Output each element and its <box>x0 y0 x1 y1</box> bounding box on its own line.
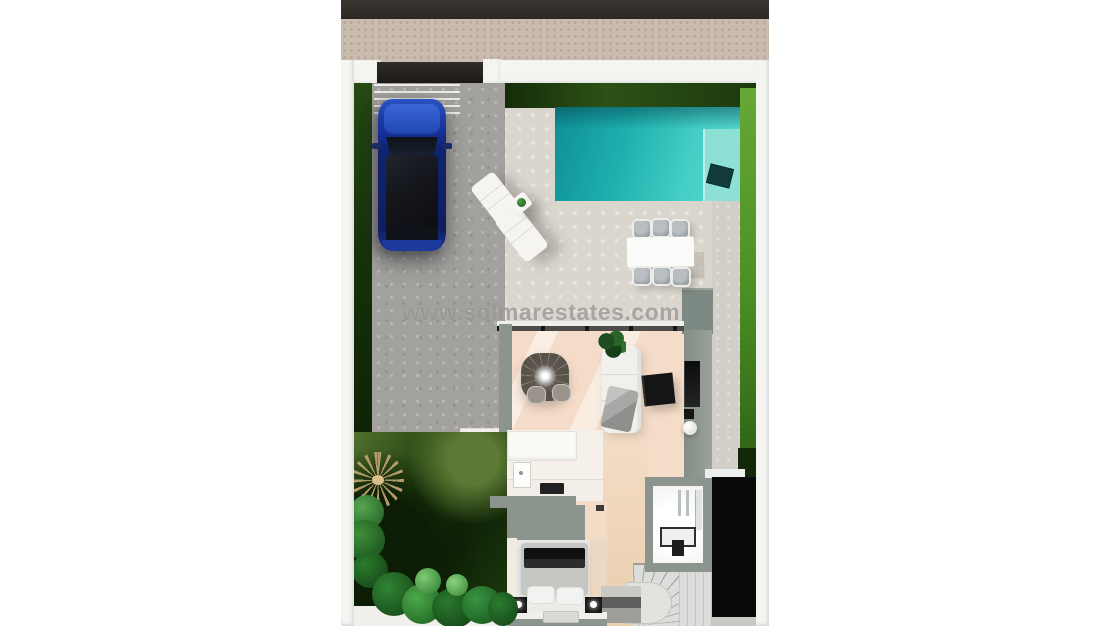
nightstand <box>585 597 602 613</box>
cooktop <box>540 483 564 494</box>
bush <box>446 574 468 596</box>
wall-tv <box>684 361 700 407</box>
outdoor-chair <box>652 266 672 286</box>
bush <box>488 592 518 626</box>
wall-top-right <box>500 60 769 84</box>
car-mirror-left <box>372 143 381 149</box>
outdoor-dining-table <box>627 236 695 267</box>
bedroom-top-wall <box>503 505 585 540</box>
side-void <box>712 477 757 618</box>
outdoor-chair <box>651 218 671 238</box>
palm-crown <box>372 475 384 485</box>
car-rear-deck <box>382 240 442 251</box>
sink-faucet <box>519 471 523 475</box>
lounger-table-plant <box>517 198 526 207</box>
stair-treads <box>679 565 712 626</box>
outdoor-chair <box>632 219 652 239</box>
indoor-chair <box>527 386 546 404</box>
shower-fixtures <box>678 490 694 516</box>
outdoor-chair <box>671 267 691 287</box>
car-hood <box>384 104 440 134</box>
house-wall-left <box>499 324 512 442</box>
pillow <box>527 586 555 604</box>
outdoor-chair <box>632 266 652 286</box>
pillow <box>556 587 584 605</box>
hall-cabinet <box>601 586 641 623</box>
kitchen-bedroom-wall <box>490 496 576 508</box>
door-frame <box>596 505 604 511</box>
bedside-lamp <box>590 601 597 608</box>
driveway-gate <box>377 62 485 83</box>
watermark: www.solmarestates.com <box>402 299 680 326</box>
indoor-chair <box>552 384 571 402</box>
car <box>374 97 450 255</box>
wall-right <box>756 60 769 626</box>
kitchen-island-counter <box>507 431 577 461</box>
porch-wall <box>682 288 713 334</box>
sliding-door-wall <box>497 326 684 331</box>
staircase <box>633 563 712 626</box>
sphere-lamp <box>683 421 697 435</box>
bed-bench <box>543 611 579 623</box>
bed-blanket <box>524 548 585 568</box>
toilet-fixture <box>672 540 684 556</box>
bush <box>415 568 441 594</box>
bathroom-mirror <box>695 490 702 530</box>
kitchen-sink <box>513 462 531 488</box>
pool-steps <box>703 129 740 201</box>
wall-panel <box>684 409 694 419</box>
car-windshield <box>384 137 440 157</box>
hedge-left-strip <box>353 83 372 435</box>
road-asphalt <box>341 0 769 19</box>
hedge-top <box>484 83 756 108</box>
side-void-edge <box>712 617 757 626</box>
pool-shadow-edge <box>555 107 740 129</box>
car-roof <box>386 155 438 231</box>
sidewalk-pavement <box>341 19 769 63</box>
swimming-pool <box>555 107 740 201</box>
car-mirror-right <box>443 143 452 149</box>
plant <box>598 330 626 358</box>
media-unit <box>641 372 675 406</box>
wall-left <box>341 60 354 626</box>
floorplan-render: www.solmarestates.com <box>0 0 1110 626</box>
hall-cabinet-front <box>601 597 641 608</box>
